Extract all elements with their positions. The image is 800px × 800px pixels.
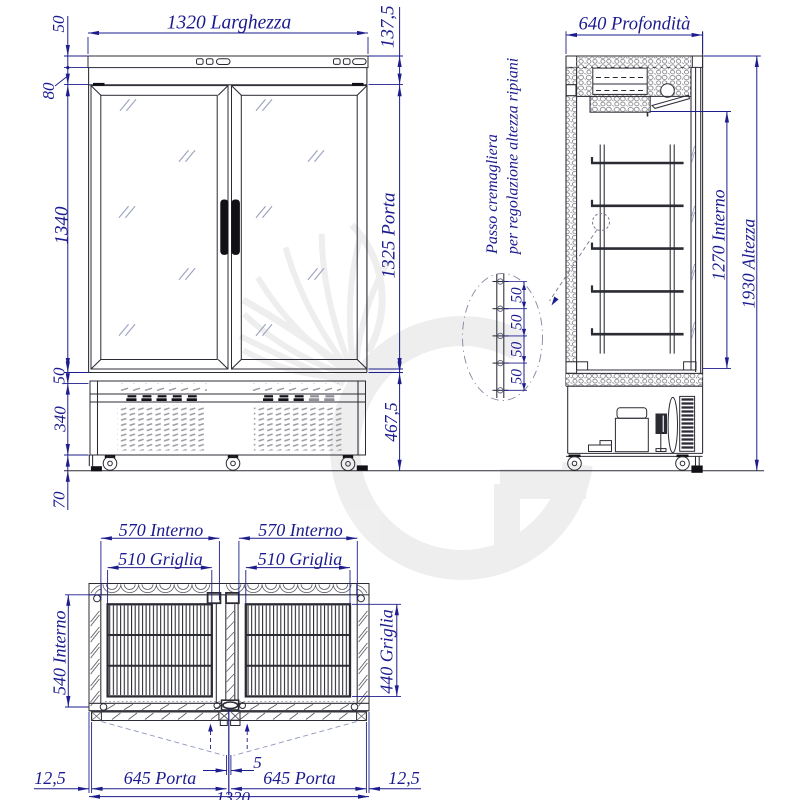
svg-text:5: 5 (253, 753, 262, 772)
svg-text:510 Griglia: 510 Griglia (118, 549, 203, 569)
svg-text:645 Porta: 645 Porta (124, 768, 197, 788)
svg-text:50: 50 (509, 314, 526, 330)
svg-text:1320 Larghezza: 1320 Larghezza (167, 13, 292, 34)
svg-text:50: 50 (509, 287, 526, 303)
svg-text:50: 50 (49, 15, 68, 33)
svg-text:50: 50 (509, 369, 526, 385)
svg-text:1325 Porta: 1325 Porta (379, 192, 400, 278)
svg-text:per regolazione altezza ripian: per regolazione altezza ripiani (505, 58, 522, 255)
svg-text:440 Griglia: 440 Griglia (377, 609, 397, 694)
svg-text:Passo cremagliera: Passo cremagliera (484, 134, 501, 255)
svg-text:137,5: 137,5 (378, 5, 399, 48)
svg-text:50: 50 (50, 367, 69, 385)
svg-text:12,5: 12,5 (34, 768, 66, 788)
svg-text:570 Interno: 570 Interno (119, 520, 204, 540)
svg-text:1270 Interno: 1270 Interno (709, 189, 729, 280)
svg-text:50: 50 (509, 342, 526, 358)
svg-text:1340: 1340 (52, 206, 73, 245)
svg-text:70: 70 (50, 491, 69, 509)
svg-text:540 Interno: 540 Interno (50, 611, 70, 696)
svg-text:640 Profondità: 640 Profondità (579, 15, 691, 35)
svg-text:645 Porta: 645 Porta (263, 768, 336, 788)
svg-text:1930 Altezza: 1930 Altezza (739, 218, 759, 308)
svg-text:510 Griglia: 510 Griglia (258, 549, 343, 569)
svg-text:570 Interno: 570 Interno (258, 520, 343, 540)
svg-text:12,5: 12,5 (388, 768, 420, 788)
svg-text:340: 340 (51, 406, 70, 433)
svg-text:80: 80 (39, 82, 58, 100)
svg-text:1320: 1320 (216, 788, 251, 800)
svg-text:467,5: 467,5 (381, 402, 401, 442)
